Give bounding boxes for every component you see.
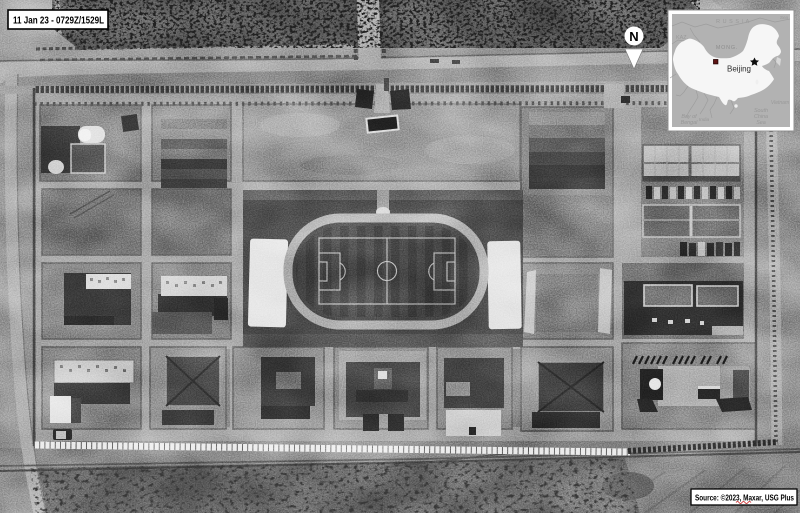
svg-text:N: N <box>629 29 638 44</box>
svg-text:Vietnam: Vietnam <box>771 100 789 106</box>
svg-text:MONG.: MONG. <box>716 45 738 51</box>
svg-text:KAZ.: KAZ. <box>676 35 688 41</box>
svg-text:Sea: Sea <box>756 120 766 126</box>
svg-text:India: India <box>699 117 710 123</box>
svg-text:Bengal: Bengal <box>681 120 699 126</box>
svg-text:11 Jan 23 - 0729Z/1529L: 11 Jan 23 - 0729Z/1529L <box>13 16 104 27</box>
svg-text:Beijing: Beijing <box>727 65 751 74</box>
svg-text:Source: ©2023, Maxar, USG Plus: Source: ©2023, Maxar, USG Plus <box>695 494 794 503</box>
svg-text:Sea: Sea <box>780 15 789 20</box>
svg-text:RUSSIA: RUSSIA <box>716 19 752 25</box>
